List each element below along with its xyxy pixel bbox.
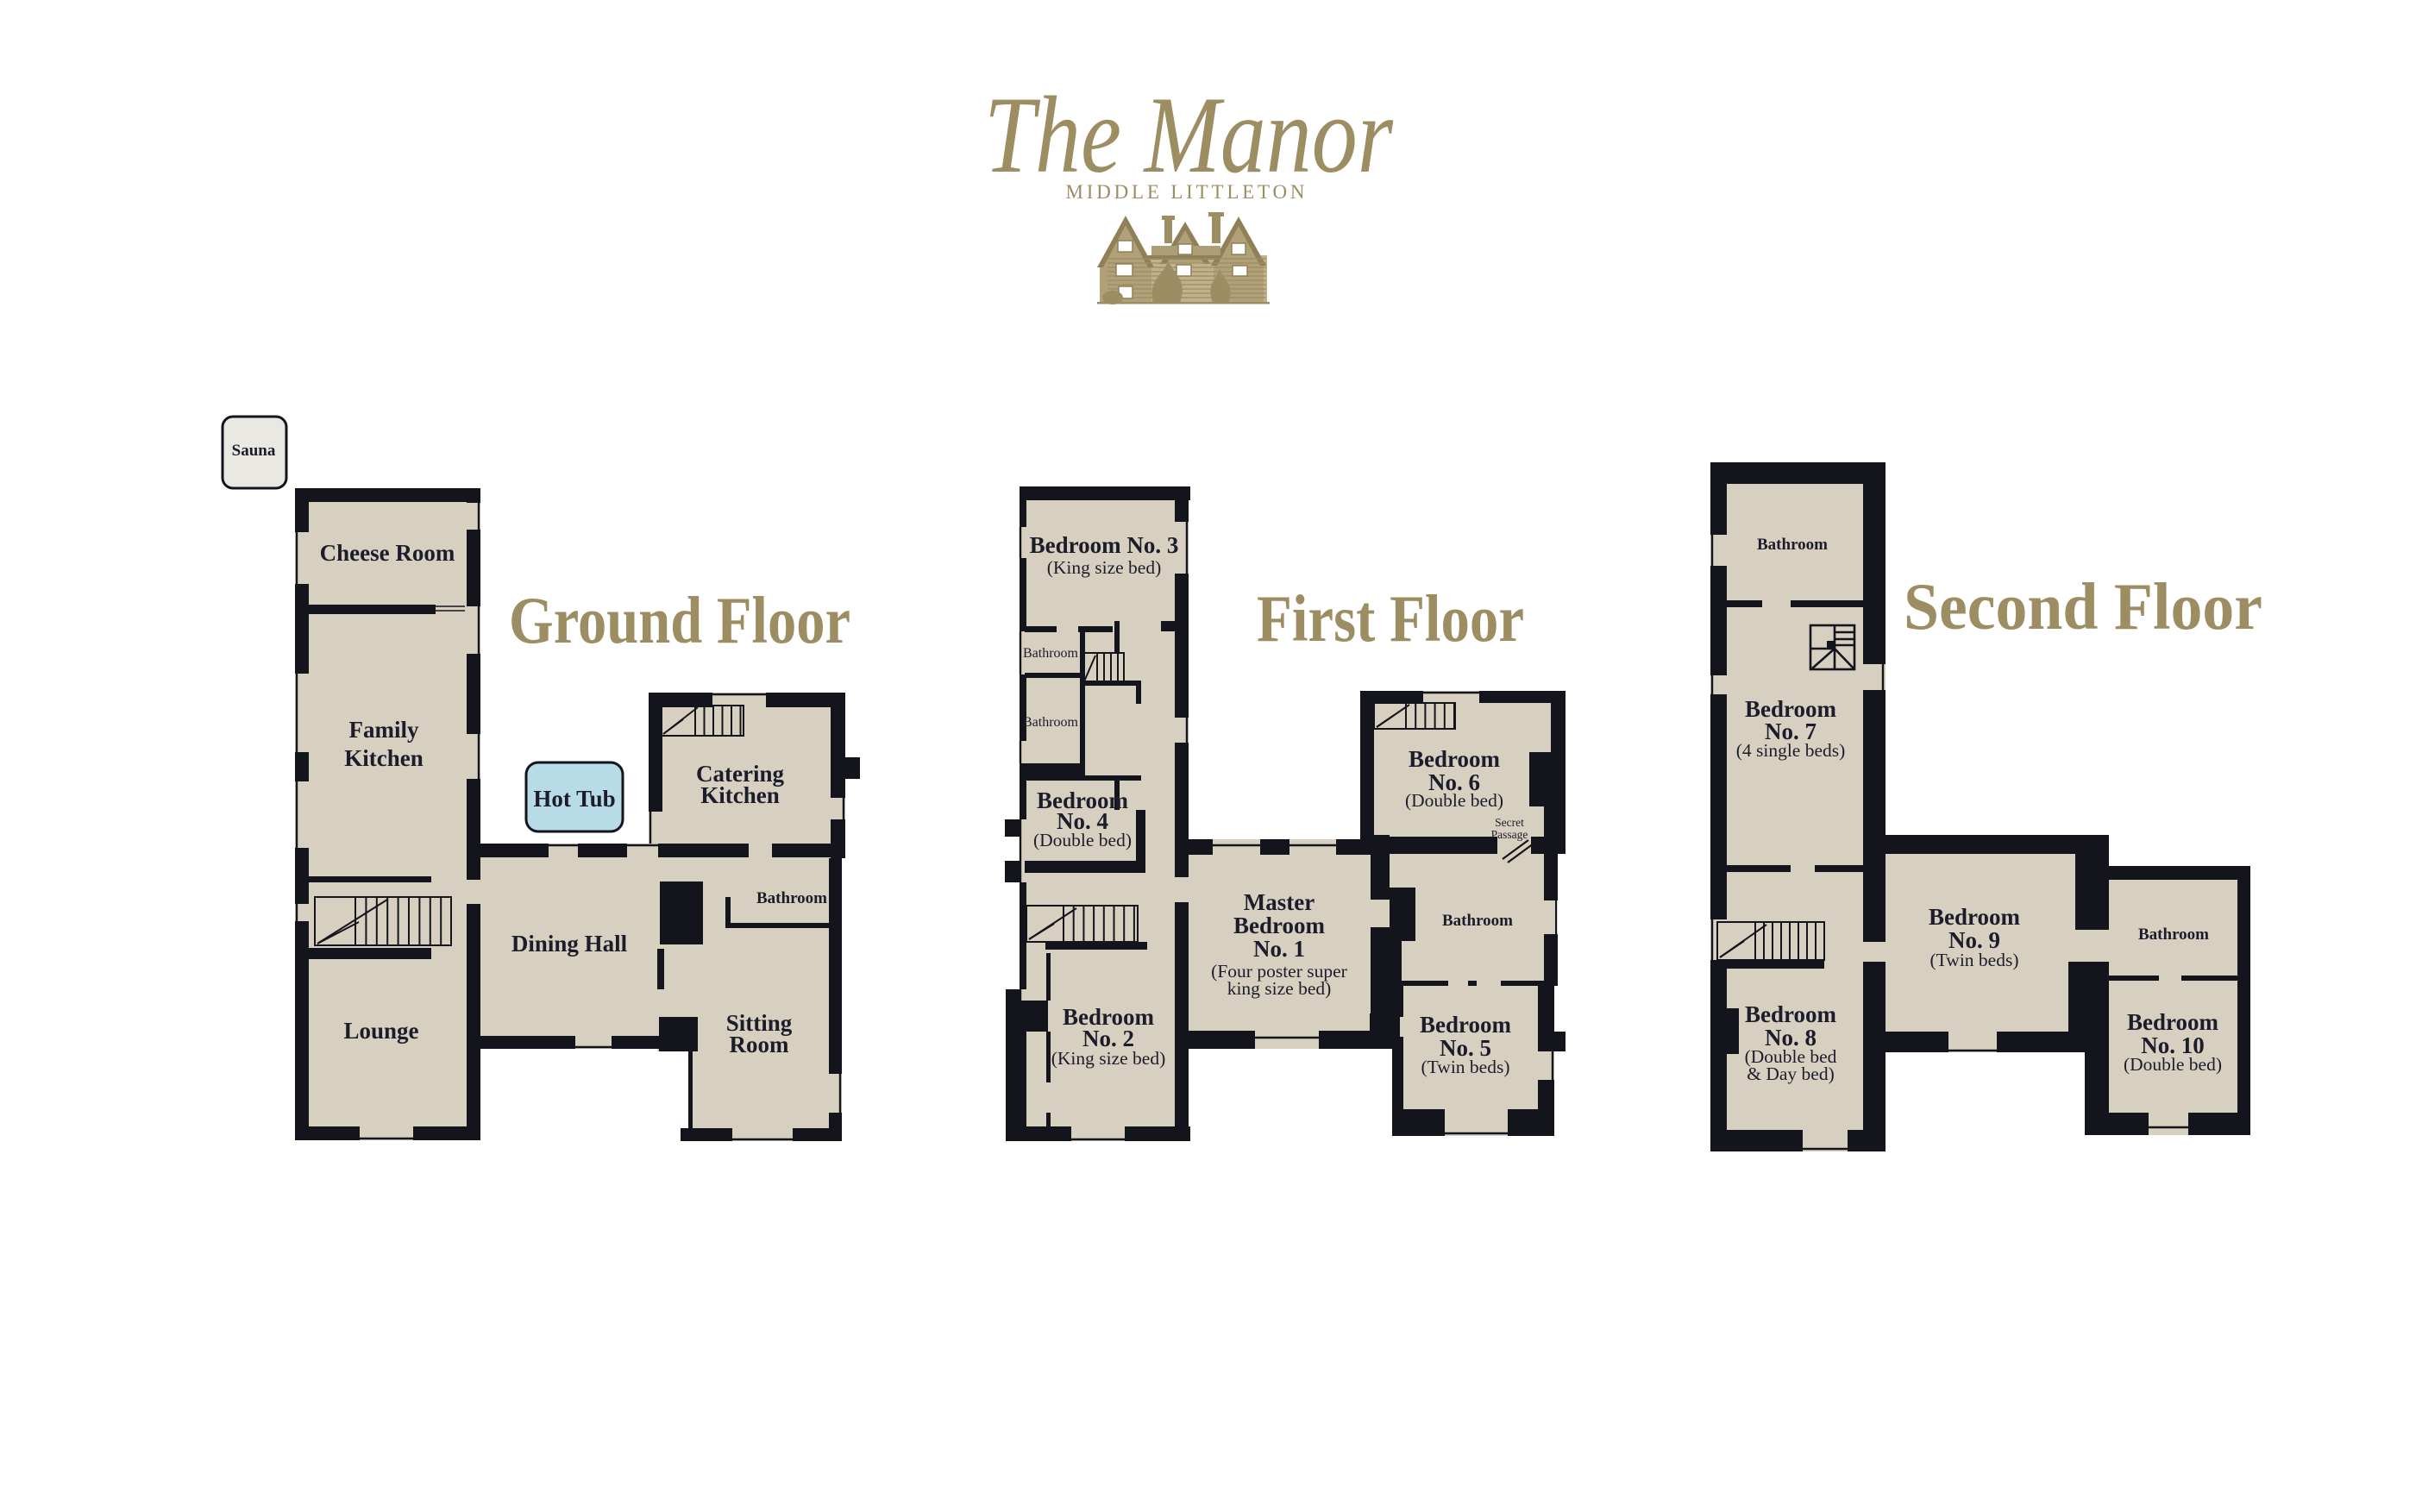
svg-text:(Twin beds): (Twin beds) — [1421, 1057, 1510, 1077]
svg-text:Bedroom: Bedroom — [1420, 1012, 1512, 1038]
svg-text:Bathroom: Bathroom — [2138, 925, 2209, 944]
svg-text:Ground Floor: Ground Floor — [509, 583, 850, 657]
svg-text:Bedroom: Bedroom — [1745, 1001, 1837, 1027]
svg-text:Bathroom: Bathroom — [1757, 536, 1828, 554]
svg-text:king size bed): king size bed) — [1227, 978, 1332, 999]
svg-text:First Floor: First Floor — [1257, 581, 1524, 656]
svg-text:Cheese Room: Cheese Room — [320, 540, 455, 566]
svg-text:Lounge: Lounge — [343, 1018, 418, 1044]
svg-text:Bedroom: Bedroom — [1409, 746, 1501, 772]
svg-text:(Double bed): (Double bed) — [2124, 1054, 2222, 1075]
svg-text:Bedroom: Bedroom — [2127, 1009, 2219, 1035]
svg-text:Kitchen: Kitchen — [700, 782, 780, 808]
svg-text:MIDDLE LITTLETON: MIDDLE LITTLETON — [1066, 181, 1305, 203]
svg-text:Bathroom: Bathroom — [1023, 715, 1079, 730]
svg-text:The Manor: The Manor — [984, 75, 1393, 196]
svg-text:Bedroom: Bedroom — [1233, 913, 1326, 938]
svg-text:(Double bed): (Double bed) — [1033, 830, 1132, 850]
svg-text:Dining Hall: Dining Hall — [511, 931, 628, 957]
svg-text:Bedroom No. 3: Bedroom No. 3 — [1030, 532, 1179, 558]
svg-text:Bedroom: Bedroom — [1929, 904, 2021, 930]
svg-text:& Day bed): & Day bed) — [1747, 1063, 1835, 1084]
svg-text:Secret: Secret — [1495, 816, 1524, 829]
svg-text:Bathroom: Bathroom — [756, 889, 827, 907]
svg-text:Kitchen: Kitchen — [344, 745, 424, 771]
svg-text:Family: Family — [349, 717, 419, 743]
svg-text:(King size bed): (King size bed) — [1047, 557, 1162, 578]
svg-text:Second Floor: Second Floor — [1904, 569, 2262, 643]
svg-text:Hot Tub: Hot Tub — [533, 786, 615, 812]
svg-text:(Double bed): (Double bed) — [1405, 790, 1503, 811]
svg-text:No. 1: No. 1 — [1253, 936, 1305, 962]
svg-text:(4 single beds): (4 single beds) — [1736, 740, 1846, 761]
svg-text:Passage: Passage — [1491, 828, 1528, 841]
svg-text:Room: Room — [730, 1032, 789, 1057]
svg-text:Bathroom: Bathroom — [1442, 912, 1513, 930]
svg-text:Master: Master — [1244, 889, 1315, 915]
svg-text:Sauna: Sauna — [232, 442, 276, 460]
svg-text:(King size bed): (King size bed) — [1051, 1048, 1166, 1069]
svg-text:(Twin beds): (Twin beds) — [1930, 950, 2019, 970]
svg-text:Bathroom: Bathroom — [1023, 646, 1079, 661]
